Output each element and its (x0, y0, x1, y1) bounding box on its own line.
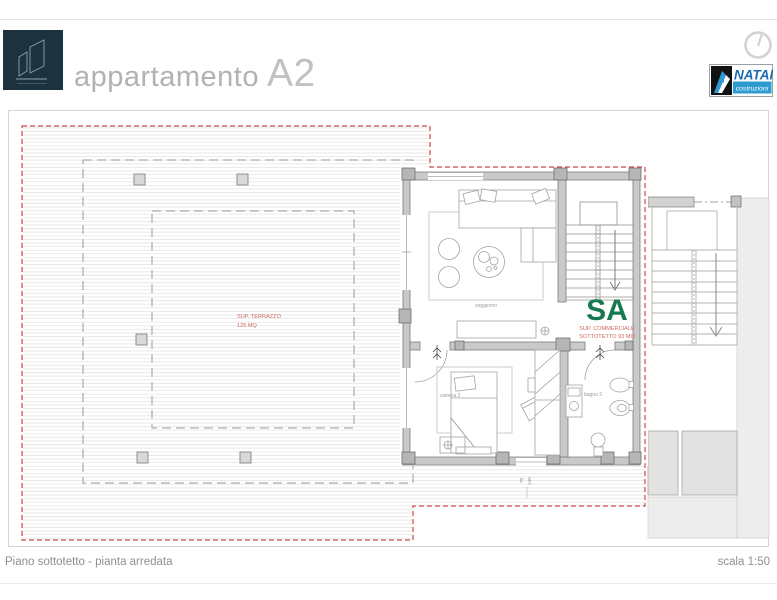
terrace-area-label: SUP. TERRAZZO (237, 314, 282, 320)
drawing-sheet: appartamentoA2 NATAN costruzioni (0, 0, 777, 600)
sa-code-label: SA (586, 294, 628, 327)
sa-line1: SUP. COMMERCIALE (579, 326, 635, 332)
scale-label: scala 1:50 (718, 556, 770, 568)
dimension-b: 140 (527, 477, 532, 485)
drawing-caption: Piano sottotetto - pianta arredata (5, 556, 173, 568)
external-stairwell (648, 196, 769, 538)
footer-rule (0, 583, 777, 584)
room-label-camera: camera 2 (440, 393, 461, 399)
floor-plan: SUP. TERRAZZO 125 MQ (0, 0, 777, 600)
dimension-a: 70 (519, 477, 524, 483)
room-label-bagno: bagno 2 (584, 392, 602, 398)
washing-machine (566, 385, 582, 417)
sa-line2: SOTTOTETTO 93 MQ (579, 334, 635, 340)
room-label-soggiorno: soggiorno (475, 303, 497, 309)
terrace-area-value: 125 MQ (237, 323, 258, 329)
bed (451, 372, 497, 454)
